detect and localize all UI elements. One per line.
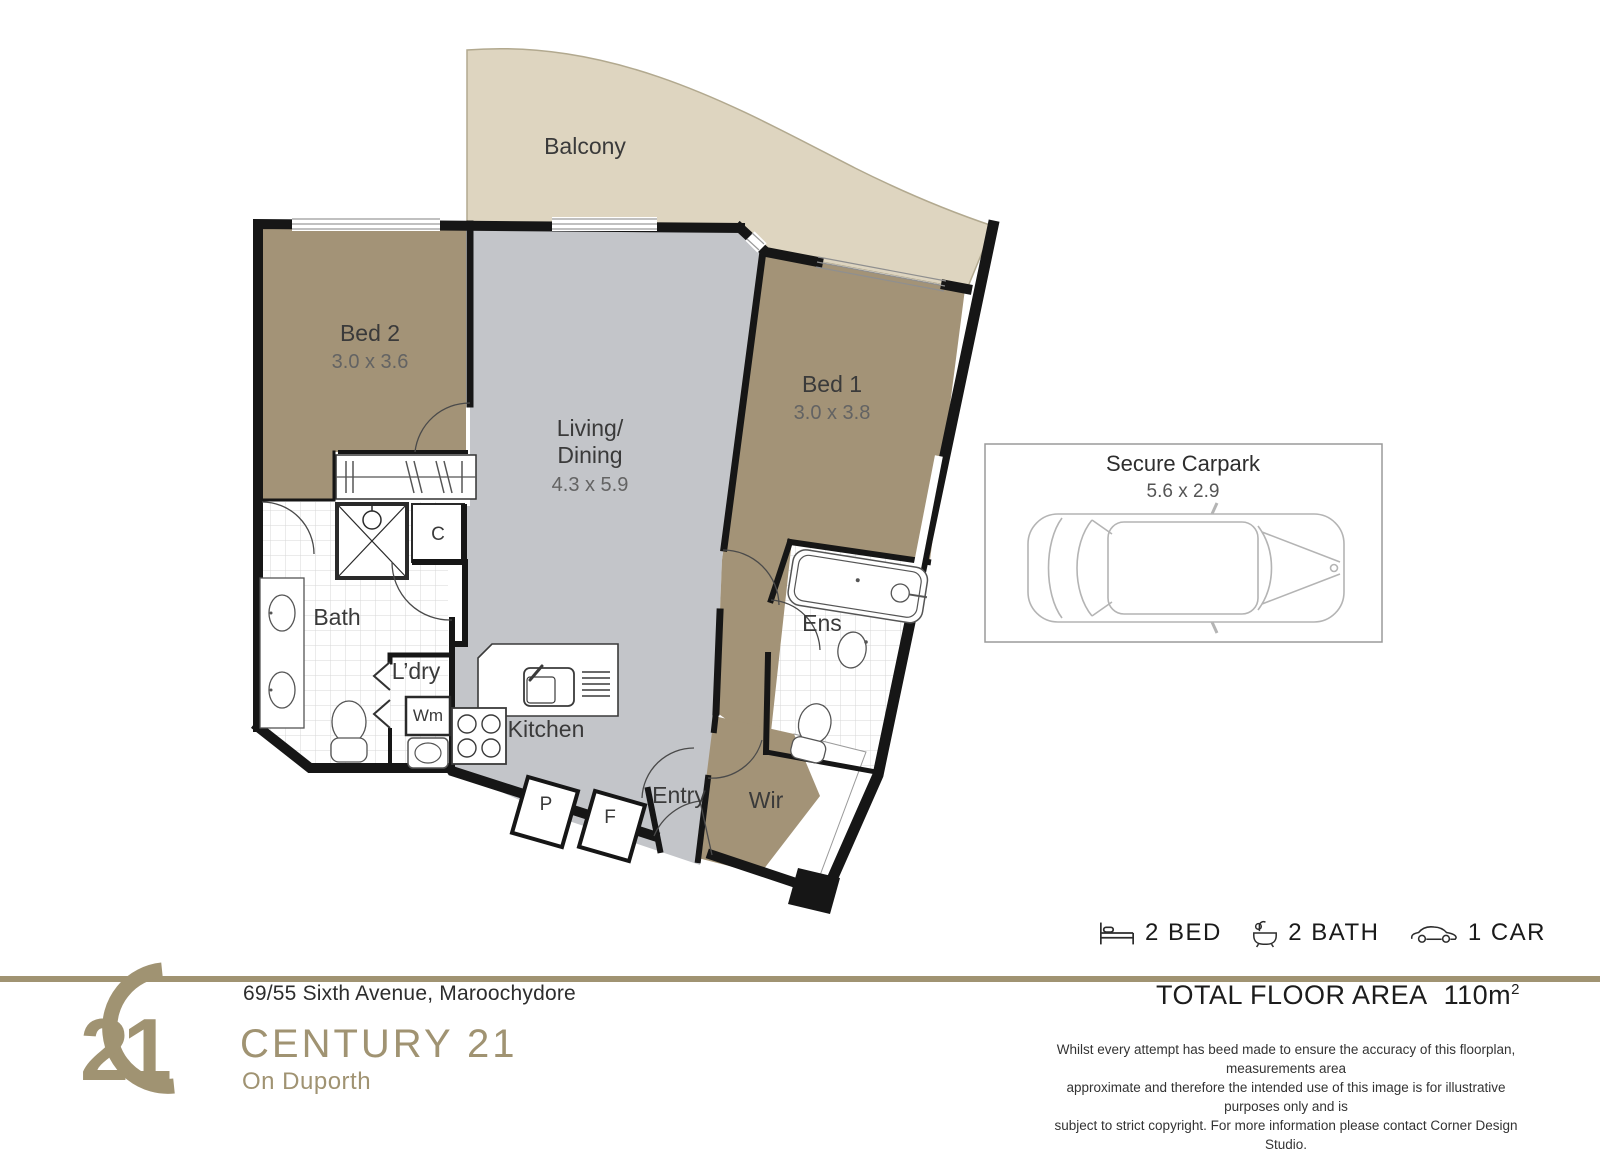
brand-name: CENTURY 21 [240,1022,518,1067]
total-floor-area-value: 110m [1444,980,1512,1010]
stove [452,708,506,764]
fridge-label: F [604,807,616,828]
bath-vanity [260,578,304,728]
carpark-box: Secure Carpark 5.6 x 2.9 [985,444,1382,642]
car-icon [1409,922,1459,944]
wm-label: Wm [413,706,443,725]
total-floor-area-label: TOTAL FLOOR AREA [1156,980,1428,1010]
living-label-line2: Dining [557,442,622,468]
bath-label: Bath [313,604,360,630]
property-summary: 2 BED 2 BATH 1 CAR [1098,910,1546,956]
carpark-title: Secure Carpark [1106,451,1261,476]
office-name: On Duporth [242,1068,371,1096]
bath-icon [1251,917,1279,949]
wir-label: Wir [749,787,784,813]
pantry-label: P [540,794,553,815]
living-label-line1: Living/ [557,415,624,441]
property-address: 69/55 Sixth Avenue, Maroochydore [243,982,576,1006]
century21-logo-numerals: 21 [80,1000,170,1099]
living-dims: 4.3 x 5.9 [552,474,629,496]
bed-icon [1098,919,1136,947]
bed1-label: Bed 1 [802,371,862,397]
laundry-label: L’dry [392,658,441,684]
bed-count-label: 2 BED [1145,919,1222,947]
bath-toilet [331,701,367,762]
ens-label: Ens [802,610,842,636]
disclaimer-line-3: subject to strict copyright. For more in… [1052,1116,1520,1154]
carpark-dims: 5.6 x 2.9 [1147,481,1220,502]
bed1-dims: 3.0 x 3.8 [794,402,871,424]
summary-car: 1 CAR [1409,919,1546,947]
kitchen-bench [478,644,618,716]
balcony-label: Balcony [544,133,626,159]
floorplan-page: { "floorplan": { "balcony": { "label": "… [0,0,1600,1131]
century21-logo: 21 [34,958,194,1131]
summary-bed: 2 BED [1098,919,1222,947]
disclaimer-line-1: Whilst every attempt has beed made to en… [1052,1040,1520,1078]
total-floor-area: TOTAL FLOOR AREA 110m2 [1156,980,1520,1011]
car-count-label: 1 CAR [1468,919,1546,947]
bed2-dims: 3.0 x 3.6 [332,351,409,373]
bed2-label: Bed 2 [340,320,400,346]
entry-label: Entry [652,782,706,808]
bath-count-label: 2 BATH [1288,919,1379,947]
total-floor-area-sup: 2 [1511,981,1520,998]
shower [337,504,407,578]
disclaimer-text: Whilst every attempt has beed made to en… [1052,1040,1520,1154]
bed2-wardrobe [336,455,476,499]
kitchen-label: Kitchen [508,716,585,742]
disclaimer-line-2: approximate and therefore the intended u… [1052,1078,1520,1116]
floorplan-drawing: Balcony Bed 2 3.0 x 3.6 Living/ Dining 4… [0,0,1600,1131]
closet-label: C [431,524,445,545]
summary-bath: 2 BATH [1251,917,1379,949]
